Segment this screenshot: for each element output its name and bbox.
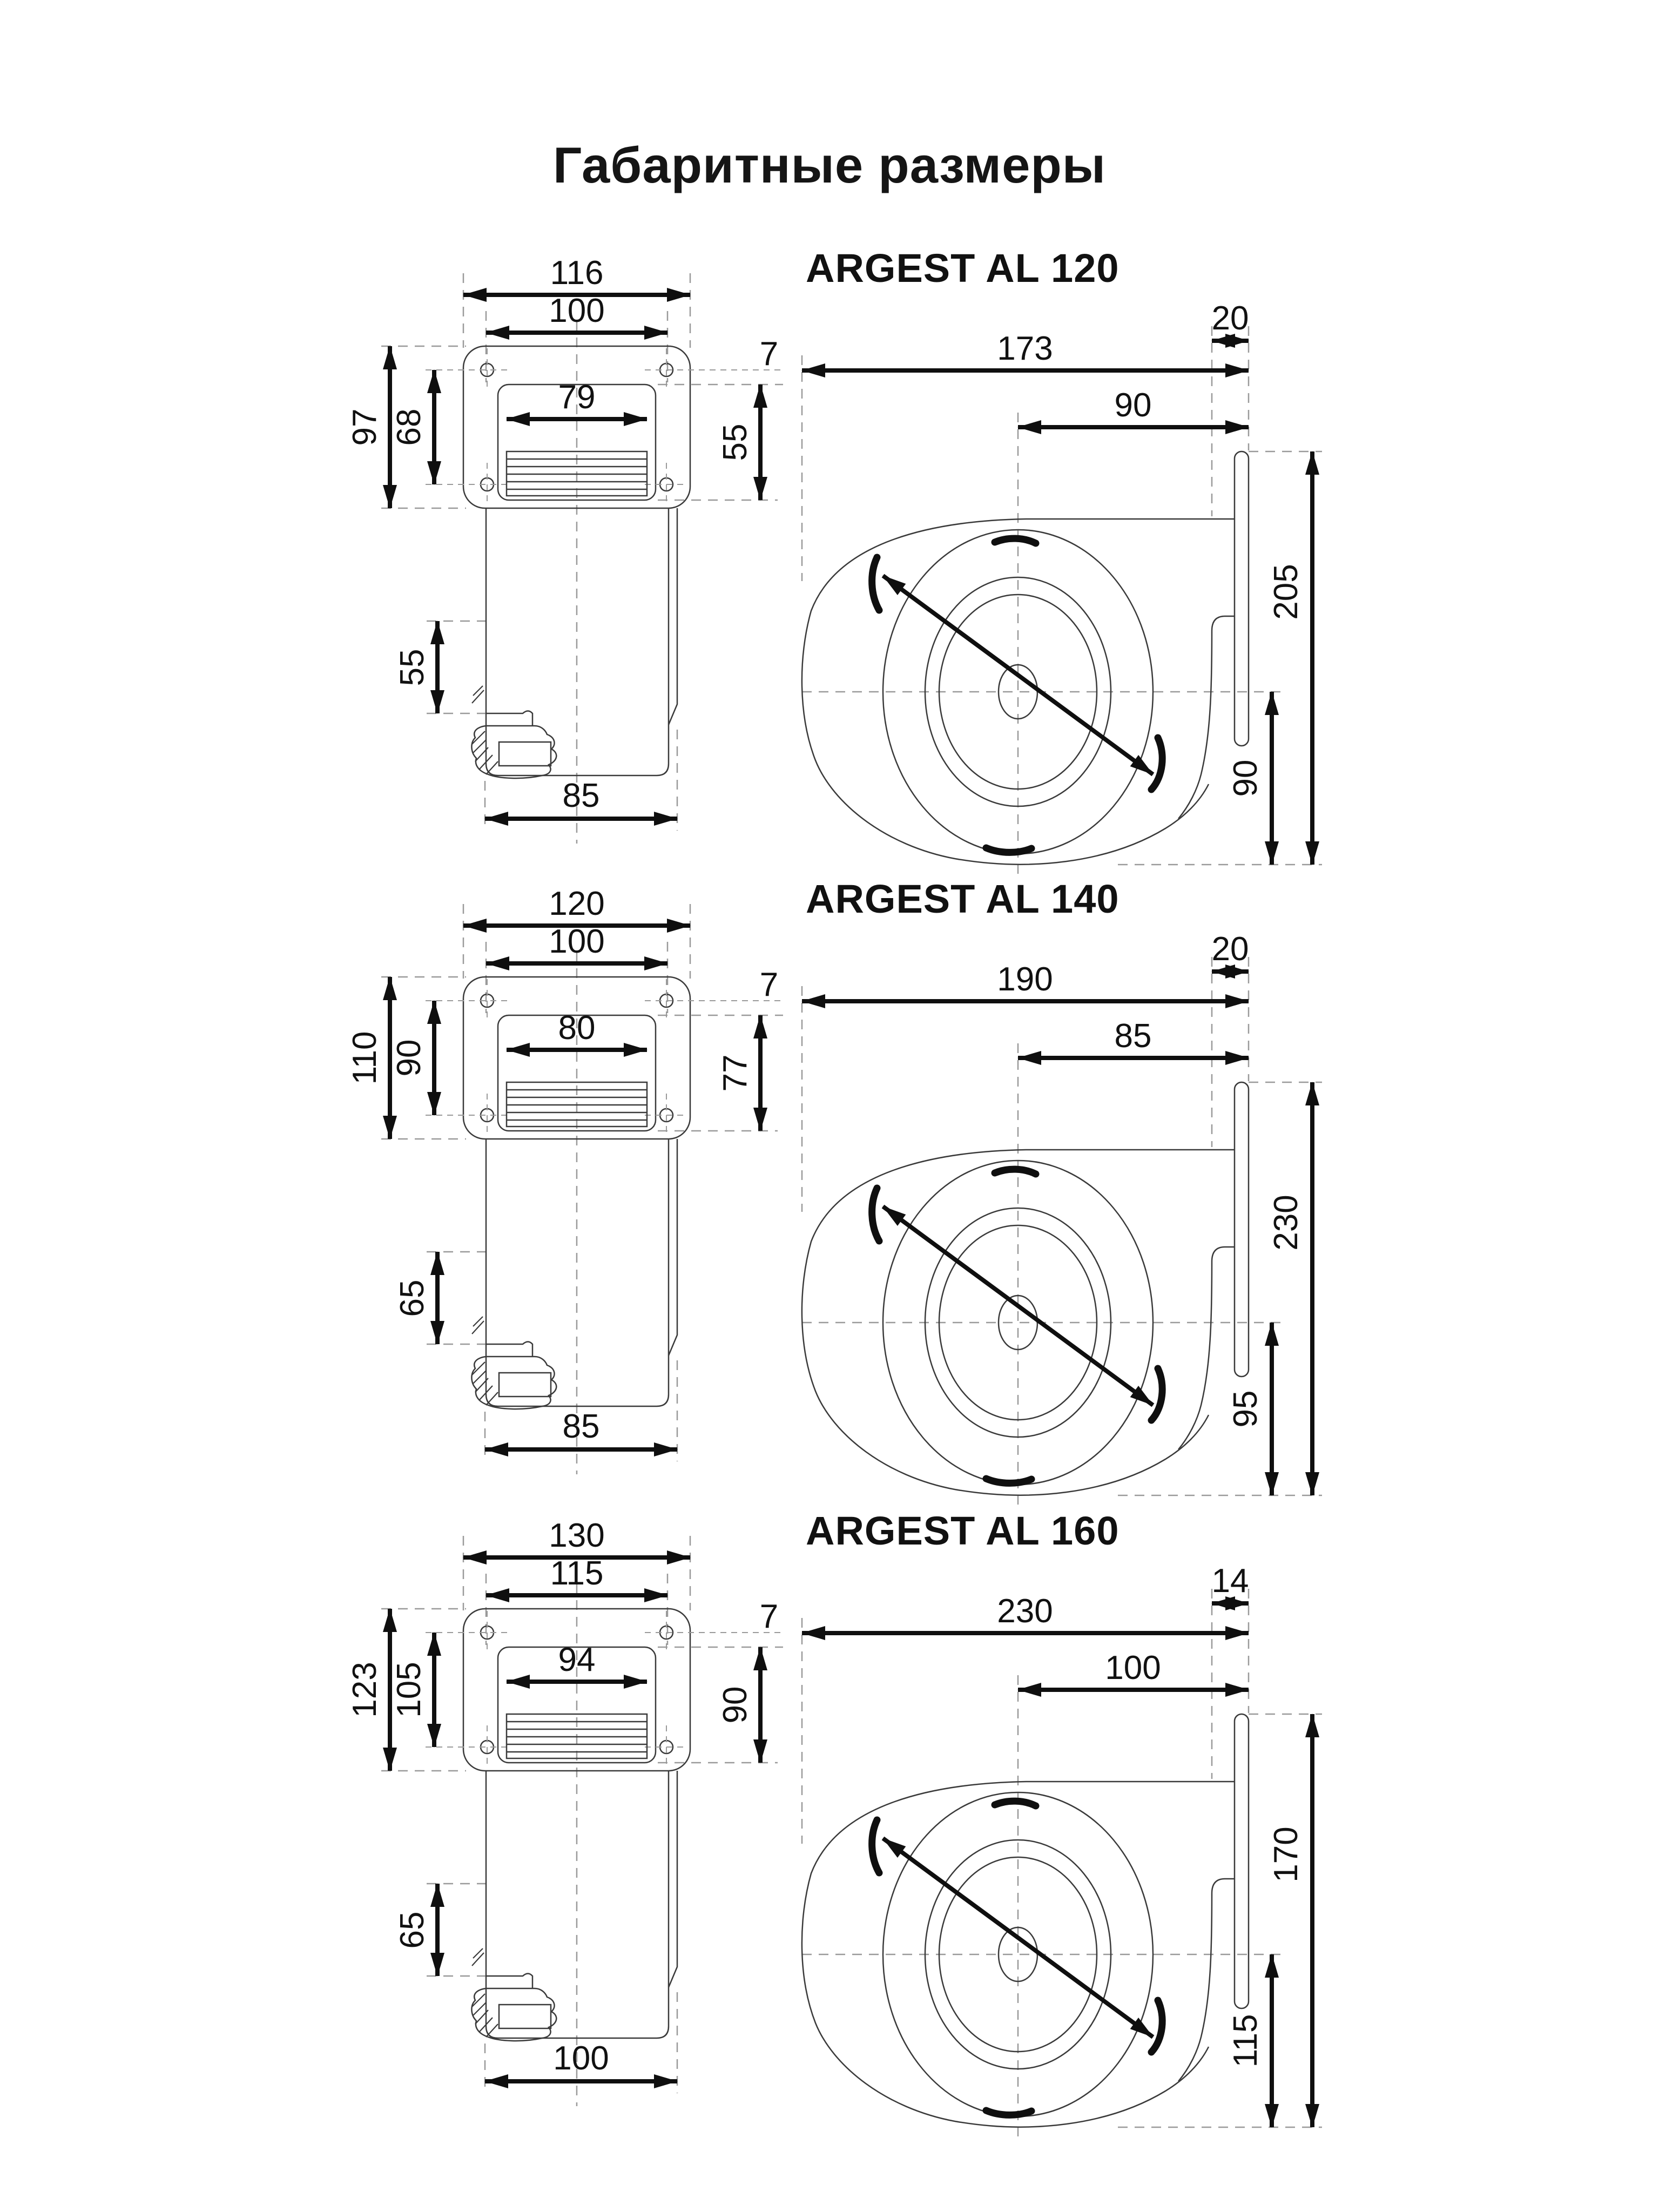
dim-height-opening: 90 [717, 1687, 754, 1724]
side-view-drawing: 20 190 85 230 95 [772, 920, 1345, 1525]
dim-body-height: 55 [394, 649, 431, 686]
dim-body-width: 100 [553, 2040, 609, 2077]
dim-center-to-bottom: 90 [1227, 760, 1264, 797]
front-view-drawing: 130 115 94 7 90 123 105 65 100 [334, 1520, 809, 2125]
dim-width-overall: 190 [997, 961, 1053, 998]
dim-center-to-bottom: 115 [1227, 2014, 1264, 2068]
model-title: ARGEST AL 140 [806, 876, 1120, 922]
extension-lines [381, 273, 783, 844]
motor-knob [471, 686, 556, 778]
dim-height-outer: 123 [346, 1662, 383, 1717]
dim-height-overall: 205 [1267, 564, 1305, 619]
dim-body-height: 65 [394, 1912, 431, 1949]
front-view-drawing: 116 100 79 7 55 97 68 55 85 [334, 257, 809, 862]
dim-width-opening: 79 [558, 379, 596, 416]
dim-width-holes: 100 [549, 923, 604, 960]
extension-lines [381, 1536, 783, 2106]
dim-height-opening: 55 [717, 424, 754, 461]
dim-center-to-flange: 85 [1115, 1017, 1152, 1055]
dim-width-holes: 115 [550, 1555, 604, 1592]
extension-lines [381, 904, 783, 1474]
dimensions: 14 230 100 170 115 [802, 1562, 1312, 2127]
dimensions: 130 115 94 7 90 123 105 65 100 [346, 1520, 778, 2081]
dim-width-holes: 100 [549, 292, 604, 329]
dimensions: 20 173 90 205 90 [802, 300, 1312, 865]
dim-body-width: 85 [563, 1408, 600, 1445]
dimensions: 116 100 79 7 55 97 68 55 85 [346, 257, 778, 819]
dimensions: 120 100 80 7 77 110 90 65 85 [346, 888, 778, 1449]
dim-height-outer: 97 [346, 409, 383, 446]
section-al120: ARGEST AL 120 [0, 238, 1659, 869]
fan-body [486, 1139, 677, 1406]
dim-flange-overhang: 20 [1212, 930, 1249, 968]
page-title: Габаритные размеры [0, 136, 1659, 194]
model-title: ARGEST AL 160 [806, 1508, 1120, 1554]
dim-width-outer: 130 [549, 1520, 604, 1554]
fan-body [486, 508, 677, 775]
section-al140: ARGEST AL 140 [0, 868, 1659, 1500]
dim-body-height: 65 [394, 1280, 431, 1317]
dim-height-holes: 105 [390, 1662, 428, 1717]
dim-height-holes: 68 [390, 409, 428, 446]
dim-height-holes: 90 [390, 1040, 428, 1077]
section-al160: ARGEST AL 160 [0, 1500, 1659, 2132]
dim-width-overall: 230 [997, 1593, 1053, 1630]
dim-width-opening: 80 [558, 1009, 596, 1047]
dim-body-width: 85 [563, 777, 600, 814]
model-title: ARGEST AL 120 [806, 245, 1120, 291]
dim-height-overall: 230 [1267, 1195, 1305, 1250]
dim-flange-overhang: 20 [1212, 300, 1249, 337]
dimensional-drawing-page: { "page": { "title": "Габаритные размеры… [0, 0, 1659, 2212]
flange-plate [1235, 1082, 1249, 1377]
dim-height-overall: 170 [1267, 1826, 1305, 1882]
fan-body [486, 1771, 677, 2038]
motor-knob [471, 1317, 556, 1409]
dim-center-to-flange: 90 [1115, 387, 1152, 424]
motor-knob [471, 1948, 556, 2041]
side-view-drawing: 14 230 100 170 115 [772, 1552, 1345, 2157]
front-view-drawing: 120 100 80 7 77 110 90 65 85 [334, 888, 809, 1493]
dim-width-outer: 120 [549, 888, 604, 922]
dim-flange-overhang: 14 [1212, 1562, 1249, 1600]
dim-width-overall: 173 [997, 330, 1053, 367]
flange-plate [1235, 1714, 1249, 2008]
flange-plate [1235, 451, 1249, 746]
dimensions: 20 190 85 230 95 [802, 930, 1312, 1495]
side-view-drawing: 20 173 90 205 90 [772, 289, 1345, 894]
dim-center-to-flange: 100 [1105, 1649, 1161, 1687]
dim-width-opening: 94 [558, 1641, 596, 1678]
dim-center-to-bottom: 95 [1227, 1391, 1264, 1428]
dim-height-opening: 77 [717, 1055, 754, 1092]
dim-width-outer: 116 [550, 257, 604, 292]
dim-height-outer: 110 [346, 1031, 383, 1085]
